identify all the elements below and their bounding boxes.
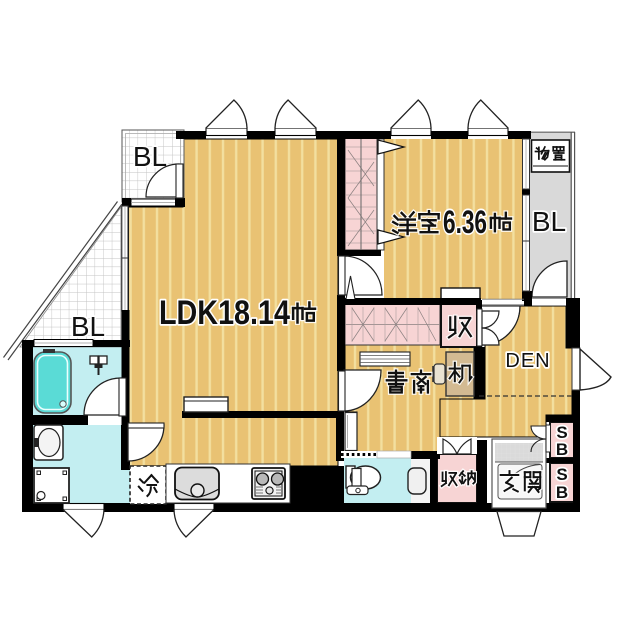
- svg-text:B: B: [556, 440, 568, 459]
- svg-text:6.36: 6.36: [443, 204, 487, 240]
- svg-text:LDK18.14: LDK18.14: [159, 294, 290, 332]
- svg-text:BL: BL: [71, 311, 105, 342]
- svg-text:DEN: DEN: [505, 350, 550, 372]
- svg-text:B: B: [556, 483, 568, 502]
- svg-text:BL: BL: [532, 206, 566, 237]
- svg-text:BL: BL: [133, 141, 167, 172]
- svg-text:S: S: [556, 465, 567, 484]
